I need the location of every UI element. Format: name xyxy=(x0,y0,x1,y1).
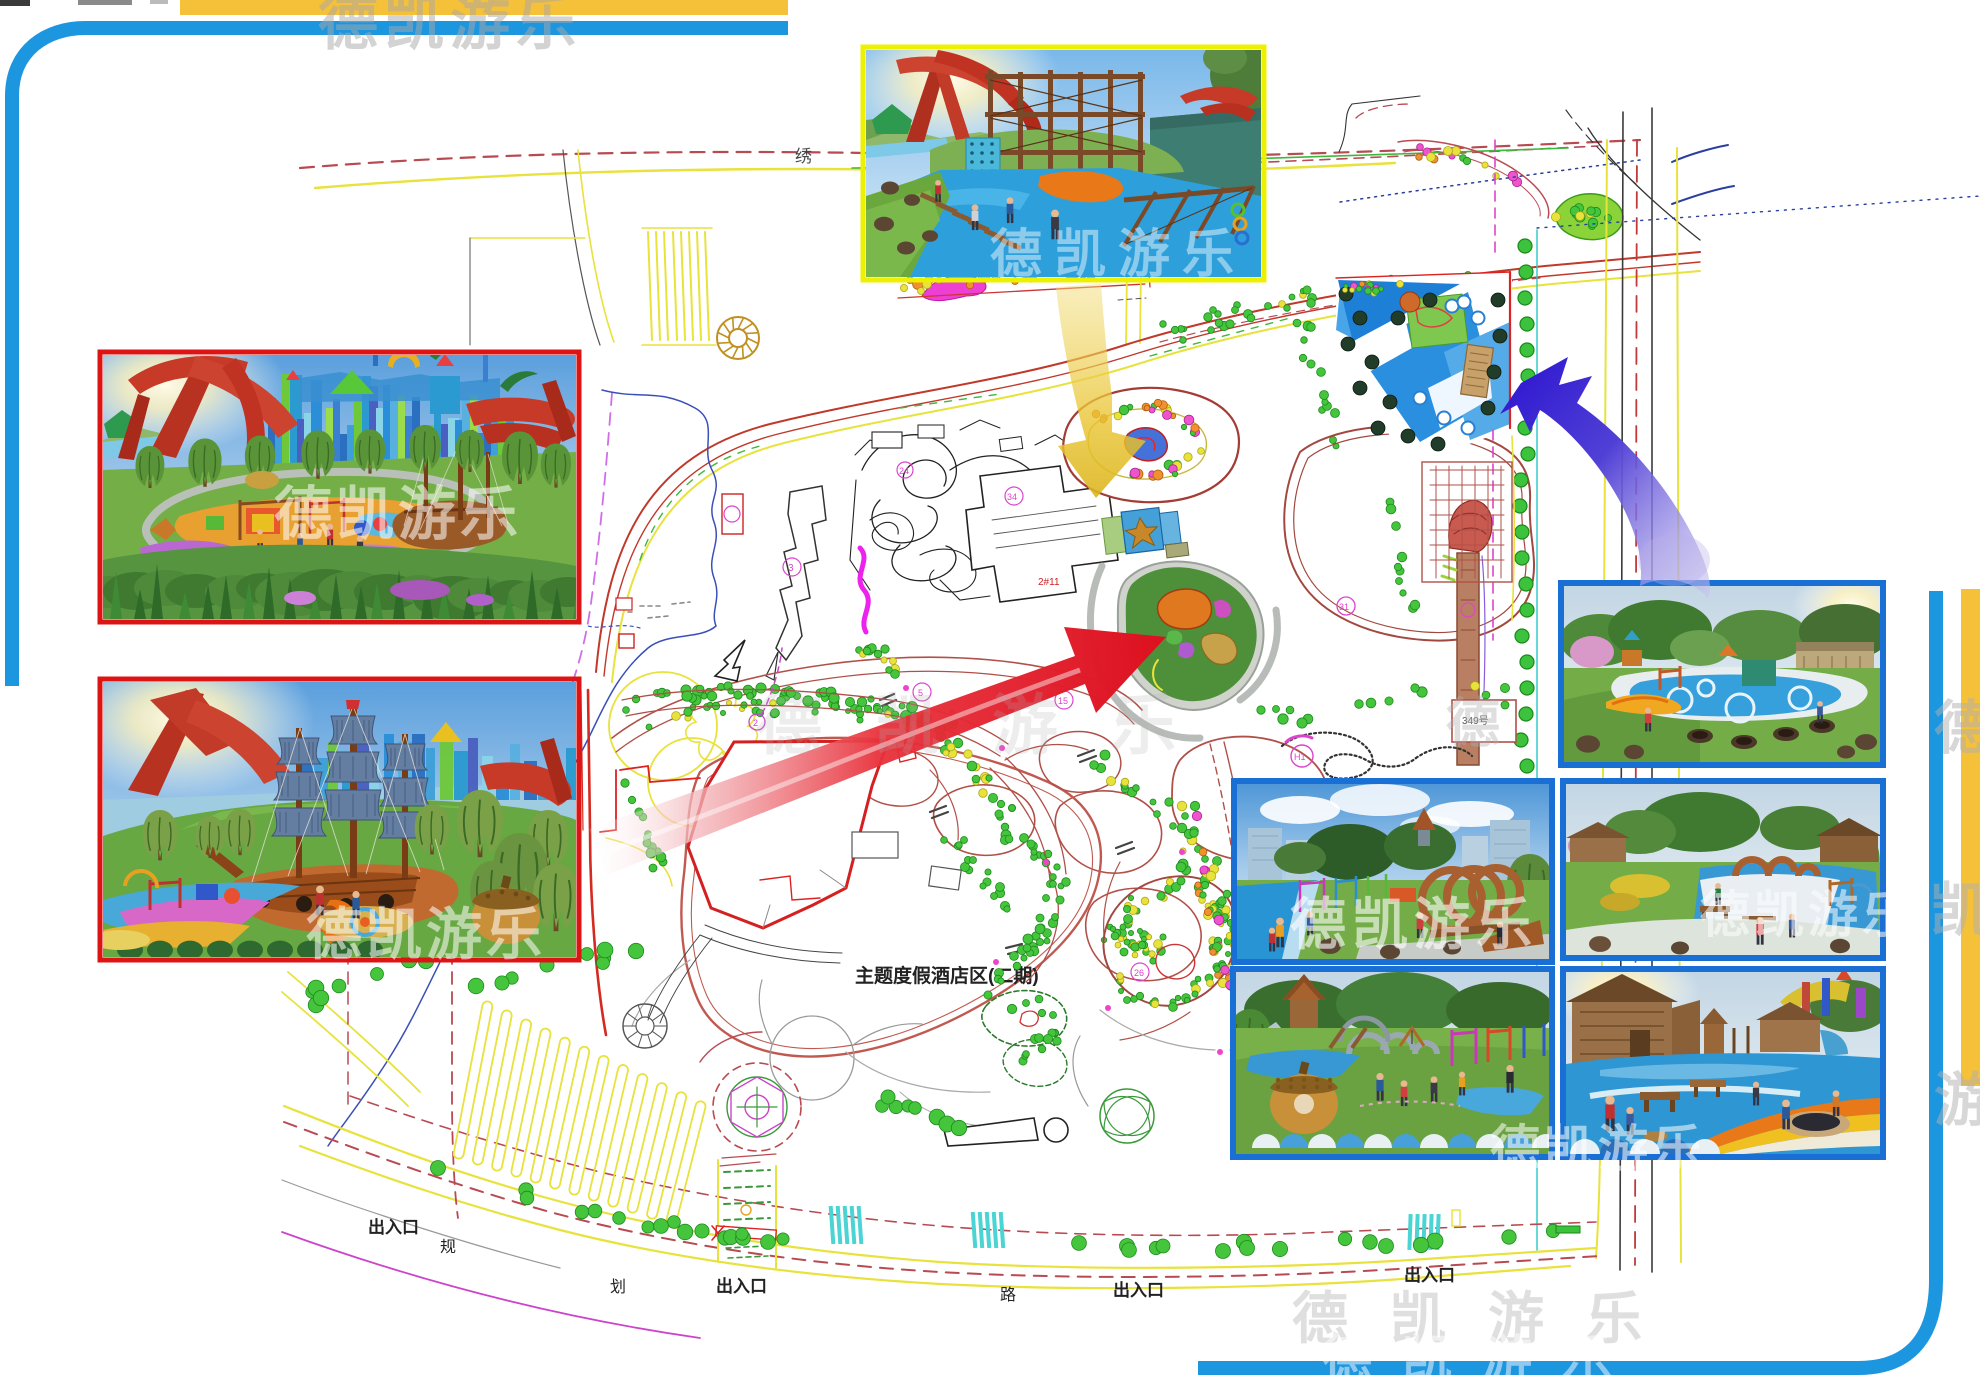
svg-text:26: 26 xyxy=(1134,968,1144,978)
svg-text:游: 游 xyxy=(1934,1068,1980,1133)
svg-text:德凯游乐: 德凯游乐 xyxy=(756,688,1228,762)
svg-text:24: 24 xyxy=(899,466,909,476)
svg-text:出入口: 出入口 xyxy=(1404,1265,1455,1285)
svg-text:绣: 绣 xyxy=(795,147,812,166)
svg-text:34: 34 xyxy=(1007,492,1017,502)
svg-text:3: 3 xyxy=(788,563,794,574)
svg-text:德凯游乐: 德凯游乐 xyxy=(1700,887,1916,943)
svg-text:德凯游乐: 德凯游乐 xyxy=(1490,1121,1706,1177)
svg-text:路: 路 xyxy=(1000,1286,1016,1304)
svg-text:H1: H1 xyxy=(1294,752,1306,762)
svg-text:德凯游乐: 德凯游乐 xyxy=(1322,1331,1642,1377)
svg-text:德: 德 xyxy=(1934,696,1980,761)
svg-text:德凯游乐: 德凯游乐 xyxy=(990,226,1246,284)
svg-text:出入口: 出入口 xyxy=(1113,1280,1164,1300)
svg-text:德: 德 xyxy=(1446,694,1500,754)
svg-text:出入口: 出入口 xyxy=(368,1217,419,1237)
svg-text:划: 划 xyxy=(610,1278,626,1296)
svg-text:规: 规 xyxy=(440,1238,456,1256)
svg-text:31: 31 xyxy=(1339,602,1349,612)
svg-text:2#11: 2#11 xyxy=(1038,577,1060,588)
svg-text:主题度假酒店区(二期): 主题度假酒店区(二期) xyxy=(855,964,1039,987)
svg-text:德凯游乐: 德凯游乐 xyxy=(318,0,582,57)
svg-text:凯: 凯 xyxy=(1930,878,1980,943)
svg-text:德凯游乐: 德凯游乐 xyxy=(1290,893,1538,956)
svg-text:德凯游乐: 德凯游乐 xyxy=(274,482,522,547)
svg-text:德凯游乐: 德凯游乐 xyxy=(306,903,546,966)
svg-text:出入口: 出入口 xyxy=(716,1276,767,1296)
